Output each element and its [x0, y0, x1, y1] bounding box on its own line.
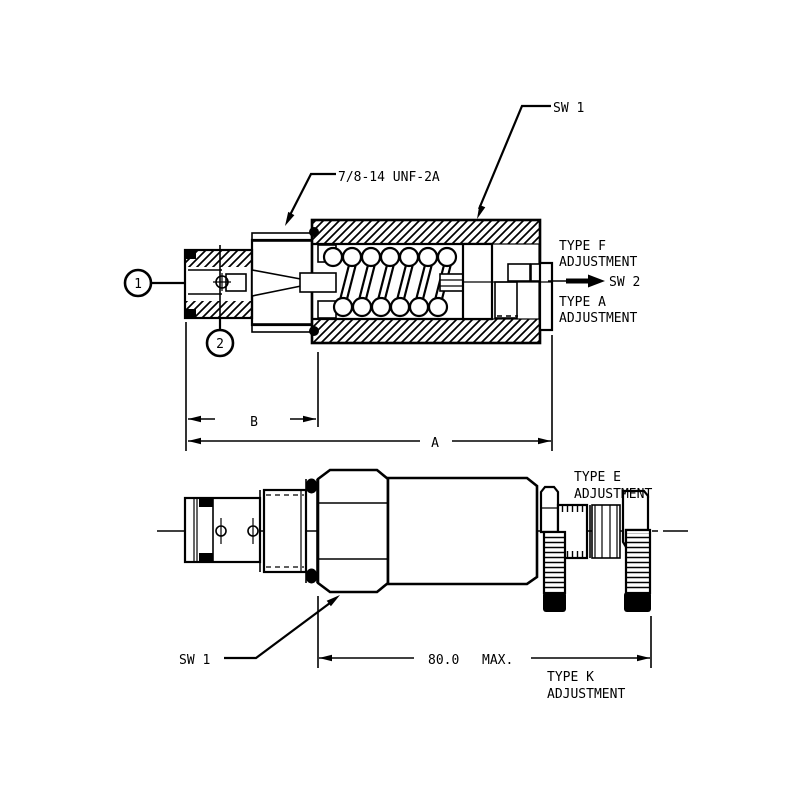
dim-a-label: A: [431, 436, 439, 451]
type-e-note: TYPE E ADJUSTMENT: [574, 470, 652, 502]
nose-external: [185, 498, 260, 562]
o-ring-external-bottom: [306, 569, 318, 584]
locknut: [592, 505, 620, 558]
leader-thread-spec: 7/8-14 UNF-2A: [285, 170, 440, 226]
valve-drawing: 1 2 SW 1 7/8-14 UNF-2A SW 2: [0, 0, 800, 800]
body-external: [388, 478, 537, 584]
knurled-knob-type-k: [623, 491, 651, 612]
type-e-line1: TYPE E: [574, 470, 621, 485]
dim-b-label: B: [250, 415, 258, 430]
type-e-line2: ADJUSTMENT: [574, 487, 652, 502]
balloon-2-number: 2: [216, 337, 224, 352]
o-ring-top: [309, 227, 319, 237]
technical-drawing-page: 1 2 SW 1 7/8-14 UNF-2A SW 2: [0, 0, 800, 800]
sw2-label: SW 2: [609, 275, 640, 290]
dimension-length: 80.0 MAX.: [318, 596, 651, 668]
thread-spec-label: 7/8-14 UNF-2A: [338, 170, 440, 185]
leader-sw1-bottom: SW 1: [179, 595, 340, 668]
balloon-2: 2: [207, 318, 233, 356]
type-f-line2: ADJUSTMENT: [559, 255, 637, 270]
poppet-stem: [300, 273, 336, 292]
type-a-line2: ADJUSTMENT: [559, 311, 637, 326]
balloon-1-number: 1: [134, 277, 142, 292]
sw1-top-label: SW 1: [553, 101, 584, 116]
type-k-note: TYPE K ADJUSTMENT: [547, 670, 625, 702]
section-view: 1 2 SW 1 7/8-14 UNF-2A SW 2: [125, 101, 640, 356]
hex-nut: [318, 470, 388, 592]
dim-length-value: 80.0: [428, 653, 459, 668]
balloon-1: 1: [125, 270, 185, 296]
nose-assembly: [185, 245, 252, 323]
type-a-note: TYPE A ADJUSTMENT: [559, 295, 637, 326]
sw1-bottom-label: SW 1: [179, 653, 210, 668]
o-ring-external-top: [306, 479, 318, 494]
leader-sw1-top: SW 1: [477, 101, 584, 219]
type-a-line1: TYPE A: [559, 295, 606, 310]
type-f-line1: TYPE F: [559, 239, 606, 254]
dim-length-suffix: MAX.: [482, 653, 513, 668]
type-k-line1: TYPE K: [547, 670, 594, 685]
adjustment-screw-end: [540, 263, 552, 330]
type-k-line2: ADJUSTMENT: [547, 687, 625, 702]
type-f-note: TYPE F ADJUSTMENT: [559, 239, 637, 270]
dimension-a: A: [188, 335, 552, 451]
o-ring-bottom: [309, 326, 319, 336]
knurled-knob-front: [543, 532, 566, 612]
sw2-arrow: SW 2: [548, 275, 640, 291]
external-view: SW 1 TYPE E ADJUSTMENT TYPE K ADJUSTMENT…: [157, 470, 688, 702]
